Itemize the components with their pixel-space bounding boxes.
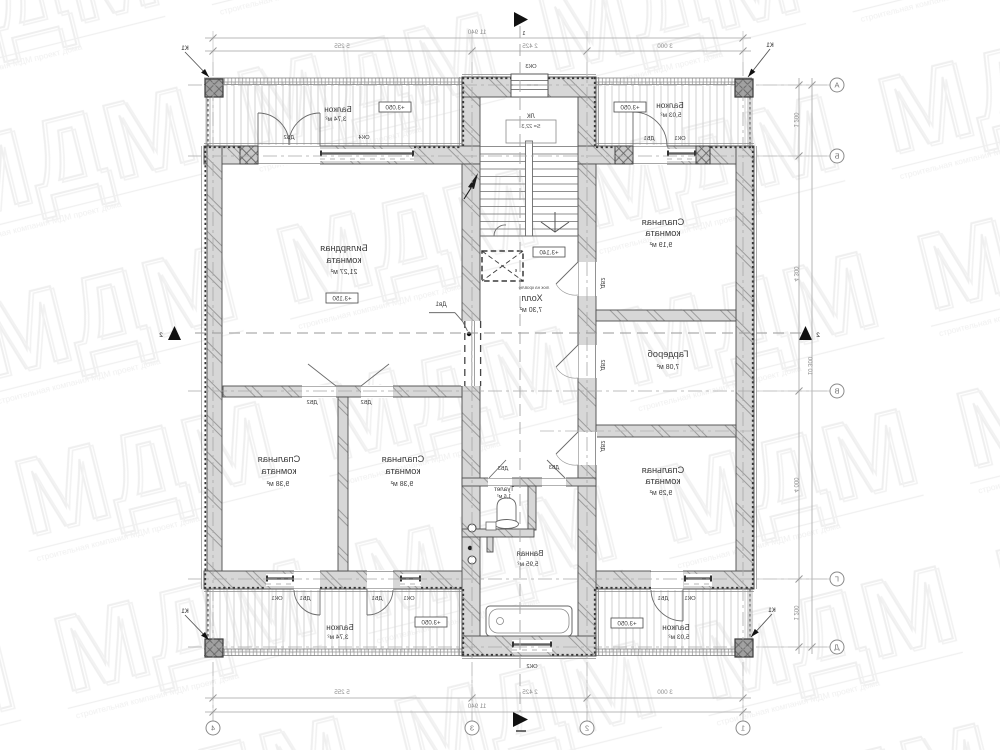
svg-text:5,03 м²: 5,03 м² [668, 634, 690, 641]
svg-text:Спальная: Спальная [642, 217, 685, 227]
svg-text:Туалет: Туалет [494, 486, 514, 493]
svg-text:S= 22,3: S= 22,3 [521, 124, 540, 130]
svg-text:9,19 м²: 9,19 м² [649, 242, 672, 249]
svg-text:ДБ1: ДБ1 [644, 136, 655, 142]
svg-text:2 425: 2 425 [522, 689, 538, 696]
svg-text:ОК1: ОК1 [271, 596, 282, 602]
svg-text:ОК1: ОК1 [674, 136, 685, 142]
svg-text:ДБ1: ДБ1 [372, 596, 383, 602]
svg-text:Гардероб: Гардероб [648, 349, 689, 359]
svg-text:5,03 м²: 5,03 м² [660, 112, 682, 119]
svg-text:2: 2 [159, 332, 163, 339]
svg-text:ДВ3: ДВ3 [549, 465, 559, 471]
svg-text:комната: комната [645, 476, 681, 486]
svg-text:Холл: Холл [521, 293, 542, 303]
svg-text:К1: К1 [181, 608, 189, 615]
svg-text:1 200: 1 200 [792, 112, 798, 128]
svg-text:Билярдная: Билярдная [320, 243, 367, 253]
svg-text:Балкон: Балкон [326, 623, 353, 632]
svg-text:К1: К1 [181, 45, 189, 52]
svg-text:+3.050: +3.050 [385, 105, 405, 112]
svg-text:7,30 м²: 7,30 м² [519, 307, 542, 314]
svg-text:Дв1: Дв1 [435, 301, 447, 308]
svg-text:комната: комната [645, 228, 681, 238]
svg-text:ОК1: ОК1 [684, 596, 695, 602]
svg-text:11 940: 11 940 [467, 29, 486, 36]
svg-text:9,38 м²: 9,38 м² [266, 481, 289, 488]
svg-text:комната: комната [385, 466, 421, 476]
svg-text:+3.050: +3.050 [421, 620, 441, 627]
svg-text:1: 1 [522, 31, 525, 37]
svg-text:ДВ2: ДВ2 [360, 400, 371, 406]
svg-text:ДВ3: ДВ3 [498, 466, 508, 472]
svg-text:10 300: 10 300 [806, 356, 812, 375]
svg-text:4 300: 4 300 [792, 266, 798, 282]
svg-text:Спальная: Спальная [258, 454, 301, 464]
svg-text:К1: К1 [768, 607, 776, 614]
svg-text:21,27 м²: 21,27 м² [330, 269, 357, 276]
svg-text:7,08 м²: 7,08 м² [656, 364, 679, 371]
svg-text:комната: комната [326, 255, 362, 265]
svg-text:+3.150: +3.150 [332, 296, 352, 303]
svg-text:2 425: 2 425 [522, 43, 538, 50]
svg-text:9,29 м²: 9,29 м² [649, 490, 672, 497]
svg-text:Спальная: Спальная [382, 454, 425, 464]
svg-text:+3.050: +3.050 [620, 105, 640, 112]
svg-text:Спальная: Спальная [642, 465, 685, 475]
svg-text:ДБ1: ДБ1 [658, 596, 669, 602]
svg-text:А: А [834, 81, 839, 90]
svg-text:ОК2: ОК2 [526, 664, 537, 670]
svg-text:3 000: 3 000 [657, 689, 673, 696]
svg-text:5,95 м²: 5,95 м² [517, 561, 539, 568]
svg-text:комната: комната [261, 466, 297, 476]
svg-text:В: В [834, 387, 839, 396]
svg-text:4 000: 4 000 [792, 477, 798, 493]
svg-text:1,6 м²: 1,6 м² [497, 494, 511, 500]
svg-text:ДВ2: ДВ2 [306, 400, 317, 406]
svg-text:1 200: 1 200 [792, 605, 798, 621]
svg-text:3,74 м²: 3,74 м² [327, 634, 349, 641]
svg-text:ОК1: ОК1 [403, 596, 414, 602]
svg-text:ДВ2: ДВ2 [599, 359, 605, 370]
svg-text:1: 1 [741, 724, 745, 733]
svg-text:люк на кровлю: люк на кровлю [518, 285, 549, 290]
svg-text:3: 3 [470, 724, 474, 733]
svg-text:11 940: 11 940 [467, 703, 486, 710]
svg-text:3 000: 3 000 [657, 43, 673, 50]
svg-text:2: 2 [585, 724, 589, 733]
svg-text:Ванная: Ванная [517, 549, 544, 558]
svg-text:9,38 м²: 9,38 м² [390, 481, 413, 488]
svg-text:ЛК: ЛК [527, 113, 535, 120]
svg-text:ДБ2: ДБ2 [284, 135, 295, 141]
svg-text:ОК3: ОК3 [525, 64, 536, 70]
svg-text:5 255: 5 255 [334, 689, 350, 696]
svg-text:ДВ2: ДВ2 [599, 277, 605, 288]
svg-text:Балкон: Балкон [656, 101, 683, 110]
svg-text:ОК4: ОК4 [358, 135, 370, 141]
svg-text:Г: Г [835, 575, 839, 584]
svg-text:ДВ2: ДВ2 [599, 440, 605, 451]
svg-text:2: 2 [816, 332, 820, 339]
svg-text:ДБ1: ДБ1 [300, 596, 311, 602]
svg-text:Балкон: Балкон [662, 623, 689, 632]
svg-text:5 255: 5 255 [334, 43, 350, 50]
svg-text:К1: К1 [766, 42, 774, 49]
svg-text:Б: Б [834, 152, 839, 161]
svg-text:4: 4 [211, 724, 215, 733]
svg-text:Балкон: Балкон [324, 105, 351, 114]
svg-text:Д: Д [834, 643, 839, 652]
svg-text:3,74 м²: 3,74 м² [325, 116, 347, 123]
svg-text:+3.140: +3.140 [539, 250, 559, 257]
svg-text:+3.050: +3.050 [617, 621, 637, 628]
